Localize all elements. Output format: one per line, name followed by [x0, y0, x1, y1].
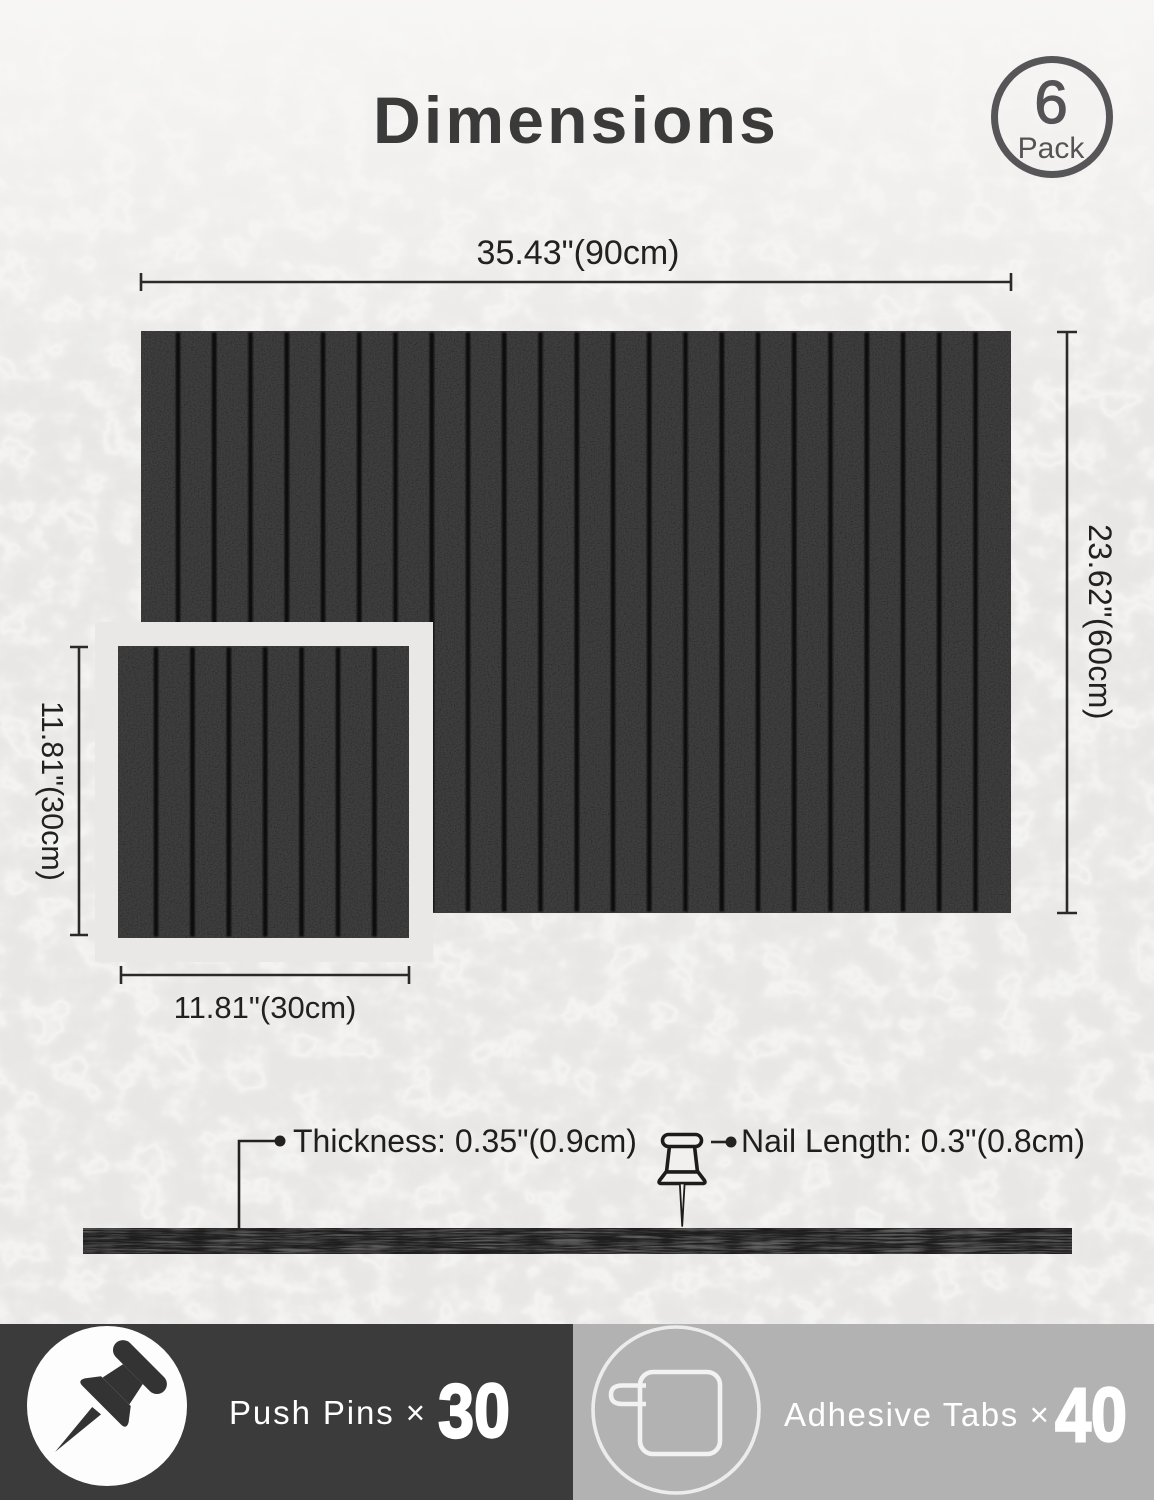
- svg-text:35.43"(90cm): 35.43"(90cm): [477, 234, 680, 272]
- svg-text:40: 40: [1055, 1372, 1127, 1457]
- svg-text:Pack: Pack: [1018, 132, 1086, 165]
- svg-text:Push Pins ×: Push Pins ×: [229, 1394, 427, 1431]
- svg-text:23.62"(60cm): 23.62"(60cm): [1082, 524, 1118, 720]
- svg-text:11.81"(30cm): 11.81"(30cm): [174, 990, 357, 1025]
- svg-text:Thickness: 0.35"(0.9cm): Thickness: 0.35"(0.9cm): [293, 1123, 637, 1159]
- svg-text:Adhesive Tabs ×: Adhesive Tabs ×: [784, 1396, 1050, 1433]
- svg-text:Dimensions: Dimensions: [373, 83, 779, 157]
- svg-text:11.81"(30cm): 11.81"(30cm): [35, 701, 69, 881]
- svg-text:6: 6: [1034, 69, 1067, 136]
- svg-text:30: 30: [438, 1368, 510, 1453]
- svg-text:Nail Length: 0.3"(0.8cm): Nail Length: 0.3"(0.8cm): [741, 1123, 1085, 1159]
